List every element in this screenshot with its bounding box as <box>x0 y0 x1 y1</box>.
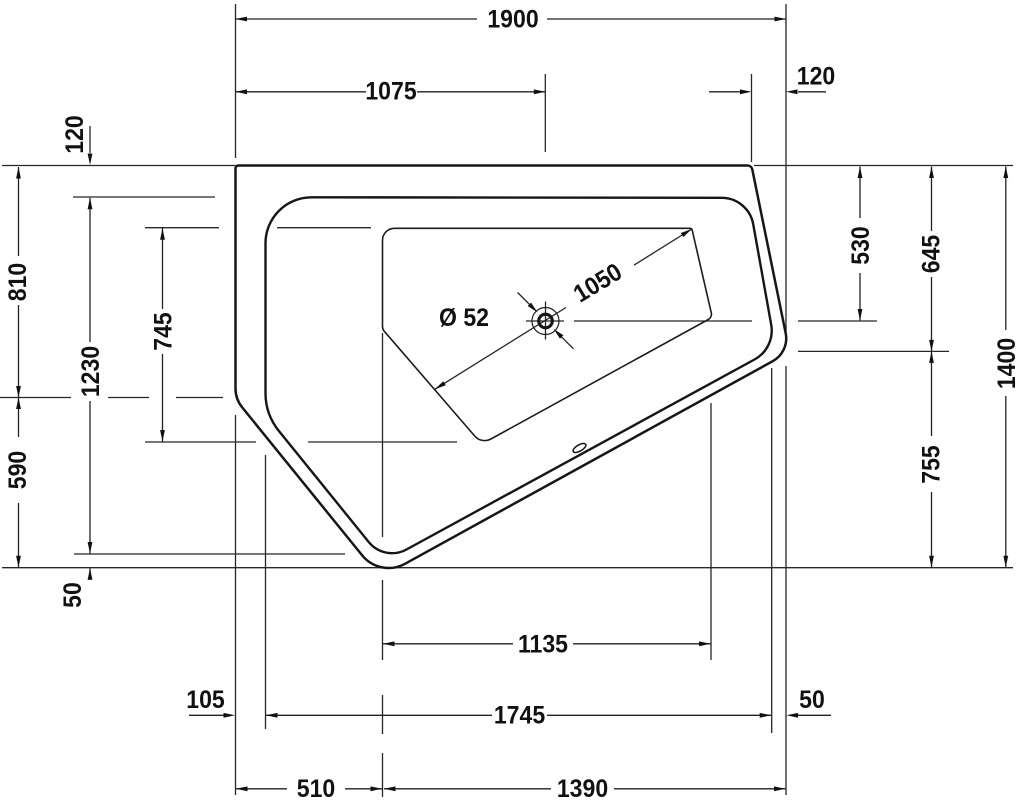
svg-text:810: 810 <box>4 263 32 301</box>
svg-text:1135: 1135 <box>518 631 568 659</box>
svg-text:1900: 1900 <box>487 6 538 34</box>
svg-text:50: 50 <box>59 582 87 608</box>
svg-text:120: 120 <box>61 115 89 153</box>
svg-text:105: 105 <box>186 686 224 714</box>
svg-text:1745: 1745 <box>494 702 545 730</box>
svg-text:120: 120 <box>797 63 835 91</box>
svg-text:755: 755 <box>918 445 946 483</box>
svg-text:510: 510 <box>297 775 335 803</box>
svg-text:1075: 1075 <box>365 78 416 106</box>
svg-text:Ø 52: Ø 52 <box>439 304 489 332</box>
svg-text:590: 590 <box>4 451 32 489</box>
svg-text:530: 530 <box>847 226 875 264</box>
svg-text:745: 745 <box>150 312 178 350</box>
svg-text:1390: 1390 <box>557 775 608 803</box>
svg-text:1230: 1230 <box>77 346 105 397</box>
svg-text:645: 645 <box>918 235 946 273</box>
svg-text:50: 50 <box>799 686 825 714</box>
svg-text:1400: 1400 <box>993 338 1021 389</box>
